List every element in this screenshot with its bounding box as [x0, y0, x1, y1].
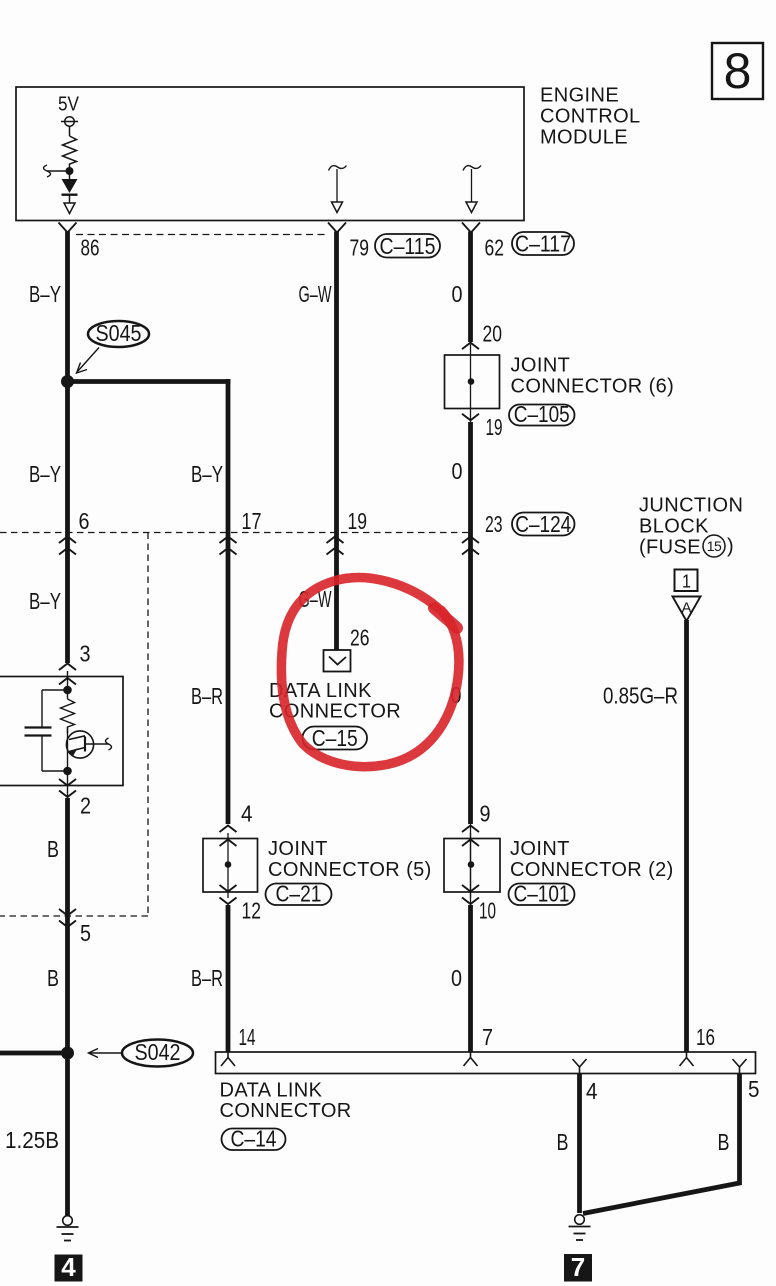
svg-text:A: A	[682, 600, 692, 617]
svg-text:7: 7	[571, 1252, 585, 1282]
svg-text:B: B	[47, 965, 59, 991]
svg-text:C–124: C–124	[515, 511, 571, 537]
svg-text:CONNECTOR: CONNECTOR	[220, 1100, 352, 1122]
svg-text:C–15: C–15	[312, 725, 358, 751]
svg-text:B–R: B–R	[191, 965, 223, 991]
svg-text:B–Y: B–Y	[29, 281, 61, 307]
svg-text:0.85G–R: 0.85G–R	[603, 683, 678, 709]
svg-text:DATA LINK: DATA LINK	[220, 1080, 323, 1102]
svg-text:12: 12	[242, 898, 262, 924]
svg-text:79: 79	[350, 235, 370, 261]
svg-text:5V: 5V	[58, 94, 80, 116]
svg-text:C–14: C–14	[231, 1126, 277, 1152]
svg-text:C–21: C–21	[276, 881, 322, 907]
svg-text:10: 10	[479, 898, 496, 924]
svg-text:0: 0	[452, 458, 463, 484]
svg-text:7: 7	[482, 1024, 493, 1050]
svg-text:C–115: C–115	[380, 233, 436, 259]
svg-text:14: 14	[239, 1024, 256, 1050]
svg-text:BLOCK: BLOCK	[639, 516, 709, 538]
svg-text:(FUSE: (FUSE	[639, 537, 701, 559]
svg-text:G–W: G–W	[299, 281, 332, 307]
svg-text:JOINT: JOINT	[510, 838, 570, 860]
svg-text:JOINT: JOINT	[511, 355, 571, 377]
svg-text:5: 5	[748, 1076, 760, 1102]
svg-text:MODULE: MODULE	[540, 127, 628, 149]
svg-text:1: 1	[682, 572, 691, 592]
svg-text:2: 2	[80, 793, 91, 819]
svg-text:0: 0	[452, 281, 463, 307]
svg-text:B–Y: B–Y	[29, 461, 61, 487]
svg-text:B–R: B–R	[191, 683, 223, 709]
svg-text:0: 0	[451, 965, 462, 991]
svg-text:20: 20	[483, 321, 503, 347]
svg-text:19: 19	[486, 414, 503, 440]
svg-text:B: B	[47, 836, 59, 862]
svg-text:B–Y: B–Y	[191, 461, 223, 487]
svg-text:9: 9	[480, 801, 491, 827]
svg-text:8: 8	[724, 43, 752, 99]
svg-text:17: 17	[242, 508, 262, 534]
svg-text:19: 19	[348, 508, 368, 534]
svg-text:C–101: C–101	[514, 881, 570, 907]
svg-text:5: 5	[80, 920, 91, 946]
svg-text:S042: S042	[135, 1039, 181, 1065]
svg-text:JOINT: JOINT	[268, 838, 328, 860]
svg-text:CONTROL: CONTROL	[540, 106, 641, 128]
svg-text:3: 3	[80, 641, 91, 667]
svg-text:ENGINE: ENGINE	[540, 85, 619, 107]
svg-text:6: 6	[79, 508, 90, 534]
svg-text:26: 26	[350, 625, 370, 651]
svg-text:): )	[727, 536, 734, 558]
svg-text:JUNCTION: JUNCTION	[639, 495, 743, 517]
svg-text:86: 86	[81, 235, 100, 261]
svg-text:4: 4	[586, 1078, 598, 1104]
svg-text:C–117: C–117	[515, 231, 571, 257]
svg-text:CONNECTOR (2): CONNECTOR (2)	[510, 859, 674, 881]
svg-text:B: B	[718, 1129, 730, 1155]
svg-text:C–105: C–105	[514, 401, 570, 427]
svg-text:62: 62	[485, 235, 505, 261]
svg-text:1.25B: 1.25B	[5, 1127, 59, 1153]
svg-text:S045: S045	[96, 320, 142, 346]
svg-text:23: 23	[485, 511, 503, 537]
svg-text:15: 15	[707, 538, 722, 554]
svg-text:16: 16	[696, 1024, 715, 1050]
svg-text:B: B	[557, 1129, 569, 1155]
svg-text:4: 4	[241, 801, 253, 827]
svg-text:CONNECTOR (5): CONNECTOR (5)	[268, 859, 432, 881]
svg-text:B–Y: B–Y	[29, 588, 61, 614]
svg-text:CONNECTOR (6): CONNECTOR (6)	[511, 376, 675, 398]
svg-text:4: 4	[61, 1252, 76, 1282]
